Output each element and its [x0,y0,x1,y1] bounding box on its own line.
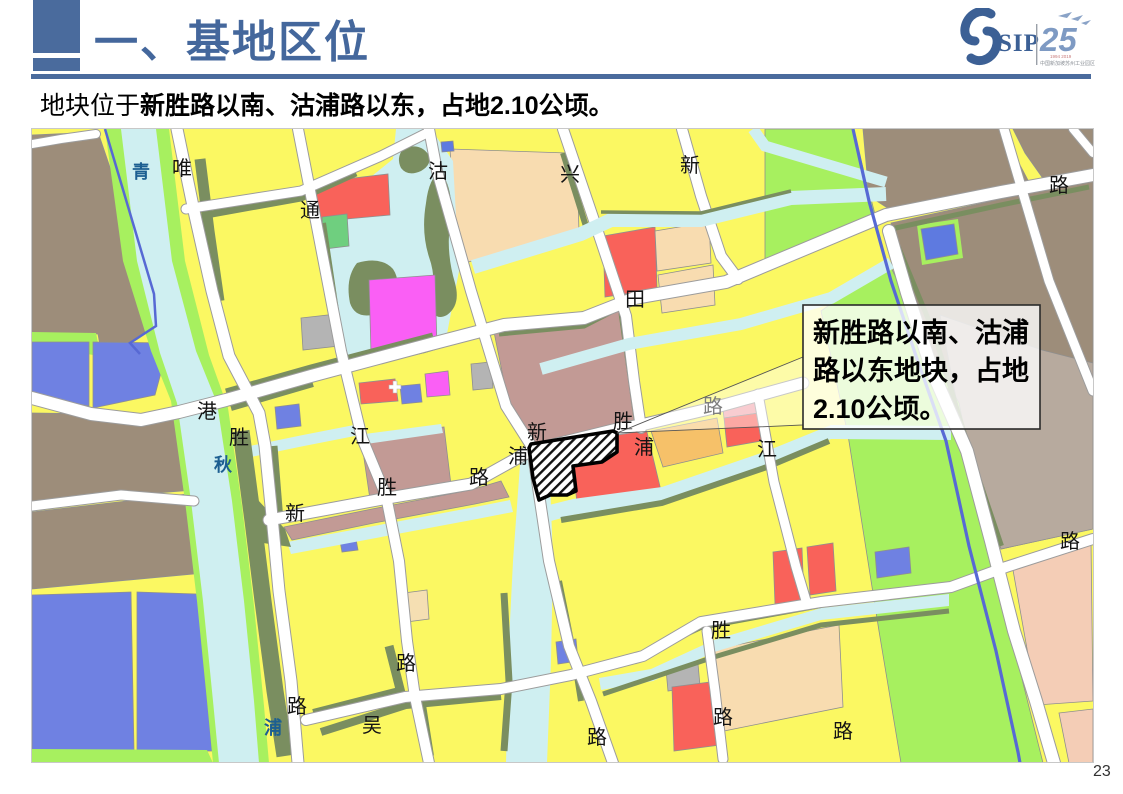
svg-text:沽: 沽 [428,160,448,183]
svg-text:中国新加坡苏州工业园区: 中国新加坡苏州工业园区 [1040,60,1095,67]
svg-text:路: 路 [1049,174,1069,197]
svg-text:2.10公顷。: 2.10公顷。 [813,394,947,424]
svg-text:青: 青 [132,162,150,182]
svg-text:通: 通 [300,199,320,222]
svg-text:新胜路以南、沽浦: 新胜路以南、沽浦 [813,317,1029,348]
svg-text:路: 路 [287,695,307,718]
svg-text:秋: 秋 [214,454,233,475]
svg-text:胜: 胜 [229,426,249,449]
svg-text:新: 新 [285,502,305,525]
svg-text:浦: 浦 [264,717,282,738]
svg-text:浦: 浦 [634,436,654,459]
svg-text:江: 江 [757,438,777,461]
svg-text:兴: 兴 [560,163,580,186]
svg-text:路: 路 [587,726,607,749]
svg-text:路: 路 [713,706,733,729]
svg-text:胜: 胜 [377,476,397,499]
svg-text:路: 路 [469,466,489,489]
svg-text:吴: 吴 [362,715,382,737]
svg-text:路: 路 [1060,530,1080,553]
svg-text:新: 新 [680,154,700,177]
svg-text:浦: 浦 [508,445,528,468]
svg-text:路: 路 [396,652,416,675]
svg-text:25: 25 [1039,21,1077,58]
svg-text:1994 2019: 1994 2019 [1050,54,1072,59]
svg-text:江: 江 [350,425,370,448]
svg-text:港: 港 [197,400,217,423]
svg-text:SIP: SIP [998,30,1040,57]
svg-text:路: 路 [833,720,853,743]
svg-text:唯: 唯 [172,157,192,180]
svg-text:路以东地块，占地: 路以东地块，占地 [813,355,1029,386]
svg-text:胜: 胜 [711,619,731,642]
svg-text:田: 田 [625,289,645,311]
